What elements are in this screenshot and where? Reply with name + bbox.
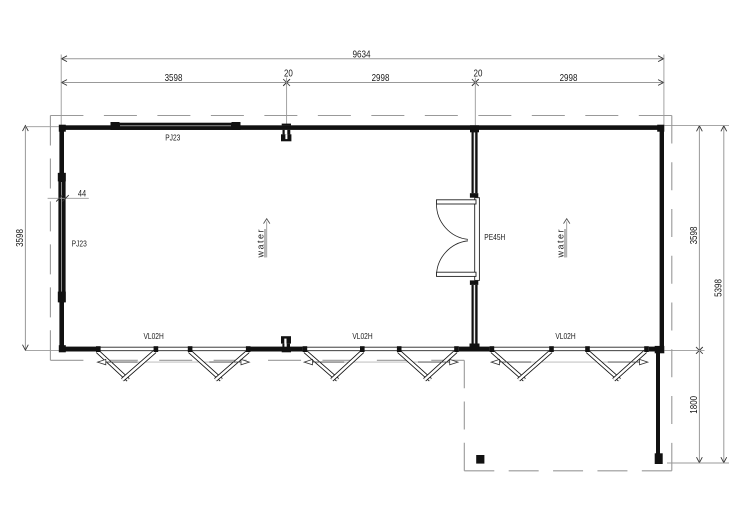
svg-text:20: 20 xyxy=(284,67,293,78)
svg-text:20: 20 xyxy=(474,67,483,78)
svg-text:44: 44 xyxy=(78,189,87,199)
svg-text:9634: 9634 xyxy=(352,48,370,59)
svg-text:3598: 3598 xyxy=(14,229,25,247)
svg-text:PJ23: PJ23 xyxy=(72,239,87,249)
svg-text:2998: 2998 xyxy=(372,72,390,83)
svg-text:2998: 2998 xyxy=(560,72,578,83)
svg-text:PJ23: PJ23 xyxy=(165,133,180,143)
svg-text:water: water xyxy=(556,228,566,259)
svg-text:VL02H: VL02H xyxy=(143,331,163,341)
svg-text:PE45H: PE45H xyxy=(484,232,505,242)
svg-text:VL02H: VL02H xyxy=(352,331,372,341)
svg-text:3598: 3598 xyxy=(688,227,699,245)
svg-text:water: water xyxy=(256,228,266,259)
svg-text:VL02H: VL02H xyxy=(555,331,575,341)
svg-text:3598: 3598 xyxy=(165,72,183,83)
svg-text:5398: 5398 xyxy=(713,279,724,297)
svg-text:1800: 1800 xyxy=(688,396,699,414)
